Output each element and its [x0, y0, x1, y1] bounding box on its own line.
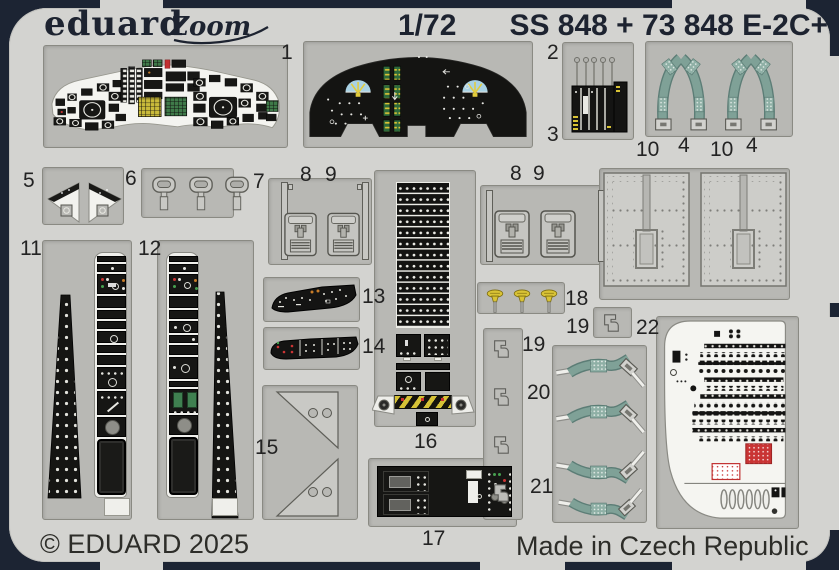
part-7-rail-nub: [288, 184, 293, 190]
part-riveted-panel: [603, 172, 690, 287]
part-number-label: 15: [255, 437, 278, 458]
part-number-label: 10: [636, 139, 659, 160]
part-19-hook: [491, 434, 511, 456]
part-number-label: 10: [710, 139, 733, 160]
part-number-label: 6: [125, 168, 137, 189]
part-20-seatbelt: [554, 398, 646, 436]
part-6-buckle: [188, 174, 214, 214]
part-12-side-strip: [205, 288, 251, 522]
part-rail: [486, 190, 493, 262]
part-16-module: [396, 372, 421, 391]
part-9-seat-frame: [540, 210, 576, 258]
part-number-label: 9: [533, 163, 545, 184]
part-11-base-tab: [104, 498, 130, 516]
part-number-label: 1: [281, 42, 293, 63]
part-18-t-handle: [513, 288, 531, 314]
part-12-console: [166, 252, 199, 498]
part-number-label: 21: [530, 476, 553, 497]
part-16-module: [424, 334, 450, 357]
part-19-hook: [491, 482, 511, 504]
part-number-label: 2: [547, 42, 559, 63]
part-16-tab: [403, 357, 411, 361]
part-20-seatbelt: [554, 352, 646, 390]
part-9-seat-frame: [327, 211, 360, 258]
part-number-label: 16: [414, 431, 437, 452]
part-14-panel: [266, 331, 360, 367]
part-12-base-tab: [212, 498, 238, 516]
display-module: [383, 471, 429, 492]
copyright-text: © EDUARD 2025: [40, 531, 249, 558]
part-2-3-detail-panel: [562, 42, 634, 140]
fret-edge-tab: [480, 560, 565, 570]
part-number-label: 8: [510, 163, 522, 184]
part-22-hook: [601, 312, 621, 334]
part-16-strip: [396, 363, 450, 370]
photo-etch-product-image: eduard Zoom 1/72 SS 848 + 73 848 E-2C+: [0, 0, 839, 570]
fret-edge-rail: [828, 317, 839, 530]
part-7-rail: [362, 182, 369, 260]
part-16-tab: [434, 357, 442, 361]
part-number-label: 18: [565, 288, 588, 309]
display-module: [383, 494, 429, 515]
part-number-label: 13: [362, 286, 385, 307]
green-switch-module: [169, 389, 198, 413]
part-riveted-panel: [700, 172, 787, 287]
part-number-label: 12: [138, 238, 161, 259]
part-8-seat-frame: [284, 211, 317, 258]
white-placard: [466, 470, 482, 479]
fret-edge-tab: [100, 560, 163, 570]
part-number-label: 22: [636, 317, 659, 338]
part-18-t-handle: [540, 288, 558, 314]
zoom-logo-text: Zoom: [169, 12, 251, 42]
part-21-seatbelt: [554, 448, 646, 486]
part-8-seat-frame: [494, 210, 530, 258]
part-breaker-console-panel: [660, 319, 790, 529]
part-6-buckle: [224, 174, 250, 214]
part-seatbelt-arch: [722, 46, 780, 134]
part-number-label: 8: [300, 164, 312, 185]
part-19-hook: [491, 386, 511, 408]
part-16-foot: [416, 412, 438, 426]
part-number-label: 20: [527, 382, 550, 403]
part-number-label: 14: [362, 336, 385, 357]
fret-edge-tab: [672, 560, 806, 570]
part-seatbelt-arch: [652, 46, 710, 134]
part-13-panel: [266, 280, 360, 320]
part-number-label: 19: [522, 334, 545, 355]
fret-edge-rail: [829, 56, 839, 162]
part-18-t-handle: [486, 288, 504, 314]
part-5-visors: [42, 167, 124, 225]
part-main-instrument-panel: [303, 44, 533, 144]
part-6-buckle: [151, 174, 177, 214]
part-number-label: 5: [23, 170, 35, 191]
part-number-label: 4: [746, 135, 758, 156]
part-number-label: 7: [253, 171, 265, 192]
part-16-breaker-ladder: [396, 182, 450, 328]
part-instrument-coaming-printed: [46, 48, 286, 148]
part-number-label: 4: [678, 135, 690, 156]
part-11-side-strip: [44, 288, 88, 502]
eduard-logo: eduard: [44, 7, 184, 41]
zoom-series-logo: Zoom: [168, 10, 278, 46]
part-21-seatbelt: [554, 486, 646, 522]
part-number-label: 11: [20, 238, 42, 259]
made-in-text: Made in Czech Republic: [516, 533, 809, 560]
white-strip: [468, 481, 478, 503]
part-number-label: 3: [547, 124, 559, 145]
product-code: SS 848 + 73 848 E-2C+: [509, 11, 828, 41]
part-7-rail-nub: [357, 184, 362, 190]
part-number-label: 19: [566, 316, 589, 337]
part-19-hook: [491, 338, 511, 360]
part-11-console: [94, 252, 127, 498]
scale-label: 1/72: [398, 11, 456, 41]
part-16-module: [396, 334, 421, 357]
part-number-label: 17: [422, 528, 445, 549]
part-16-module: [425, 372, 450, 391]
fret-edge-rail: [828, 160, 839, 303]
part-number-label: 9: [325, 164, 337, 185]
